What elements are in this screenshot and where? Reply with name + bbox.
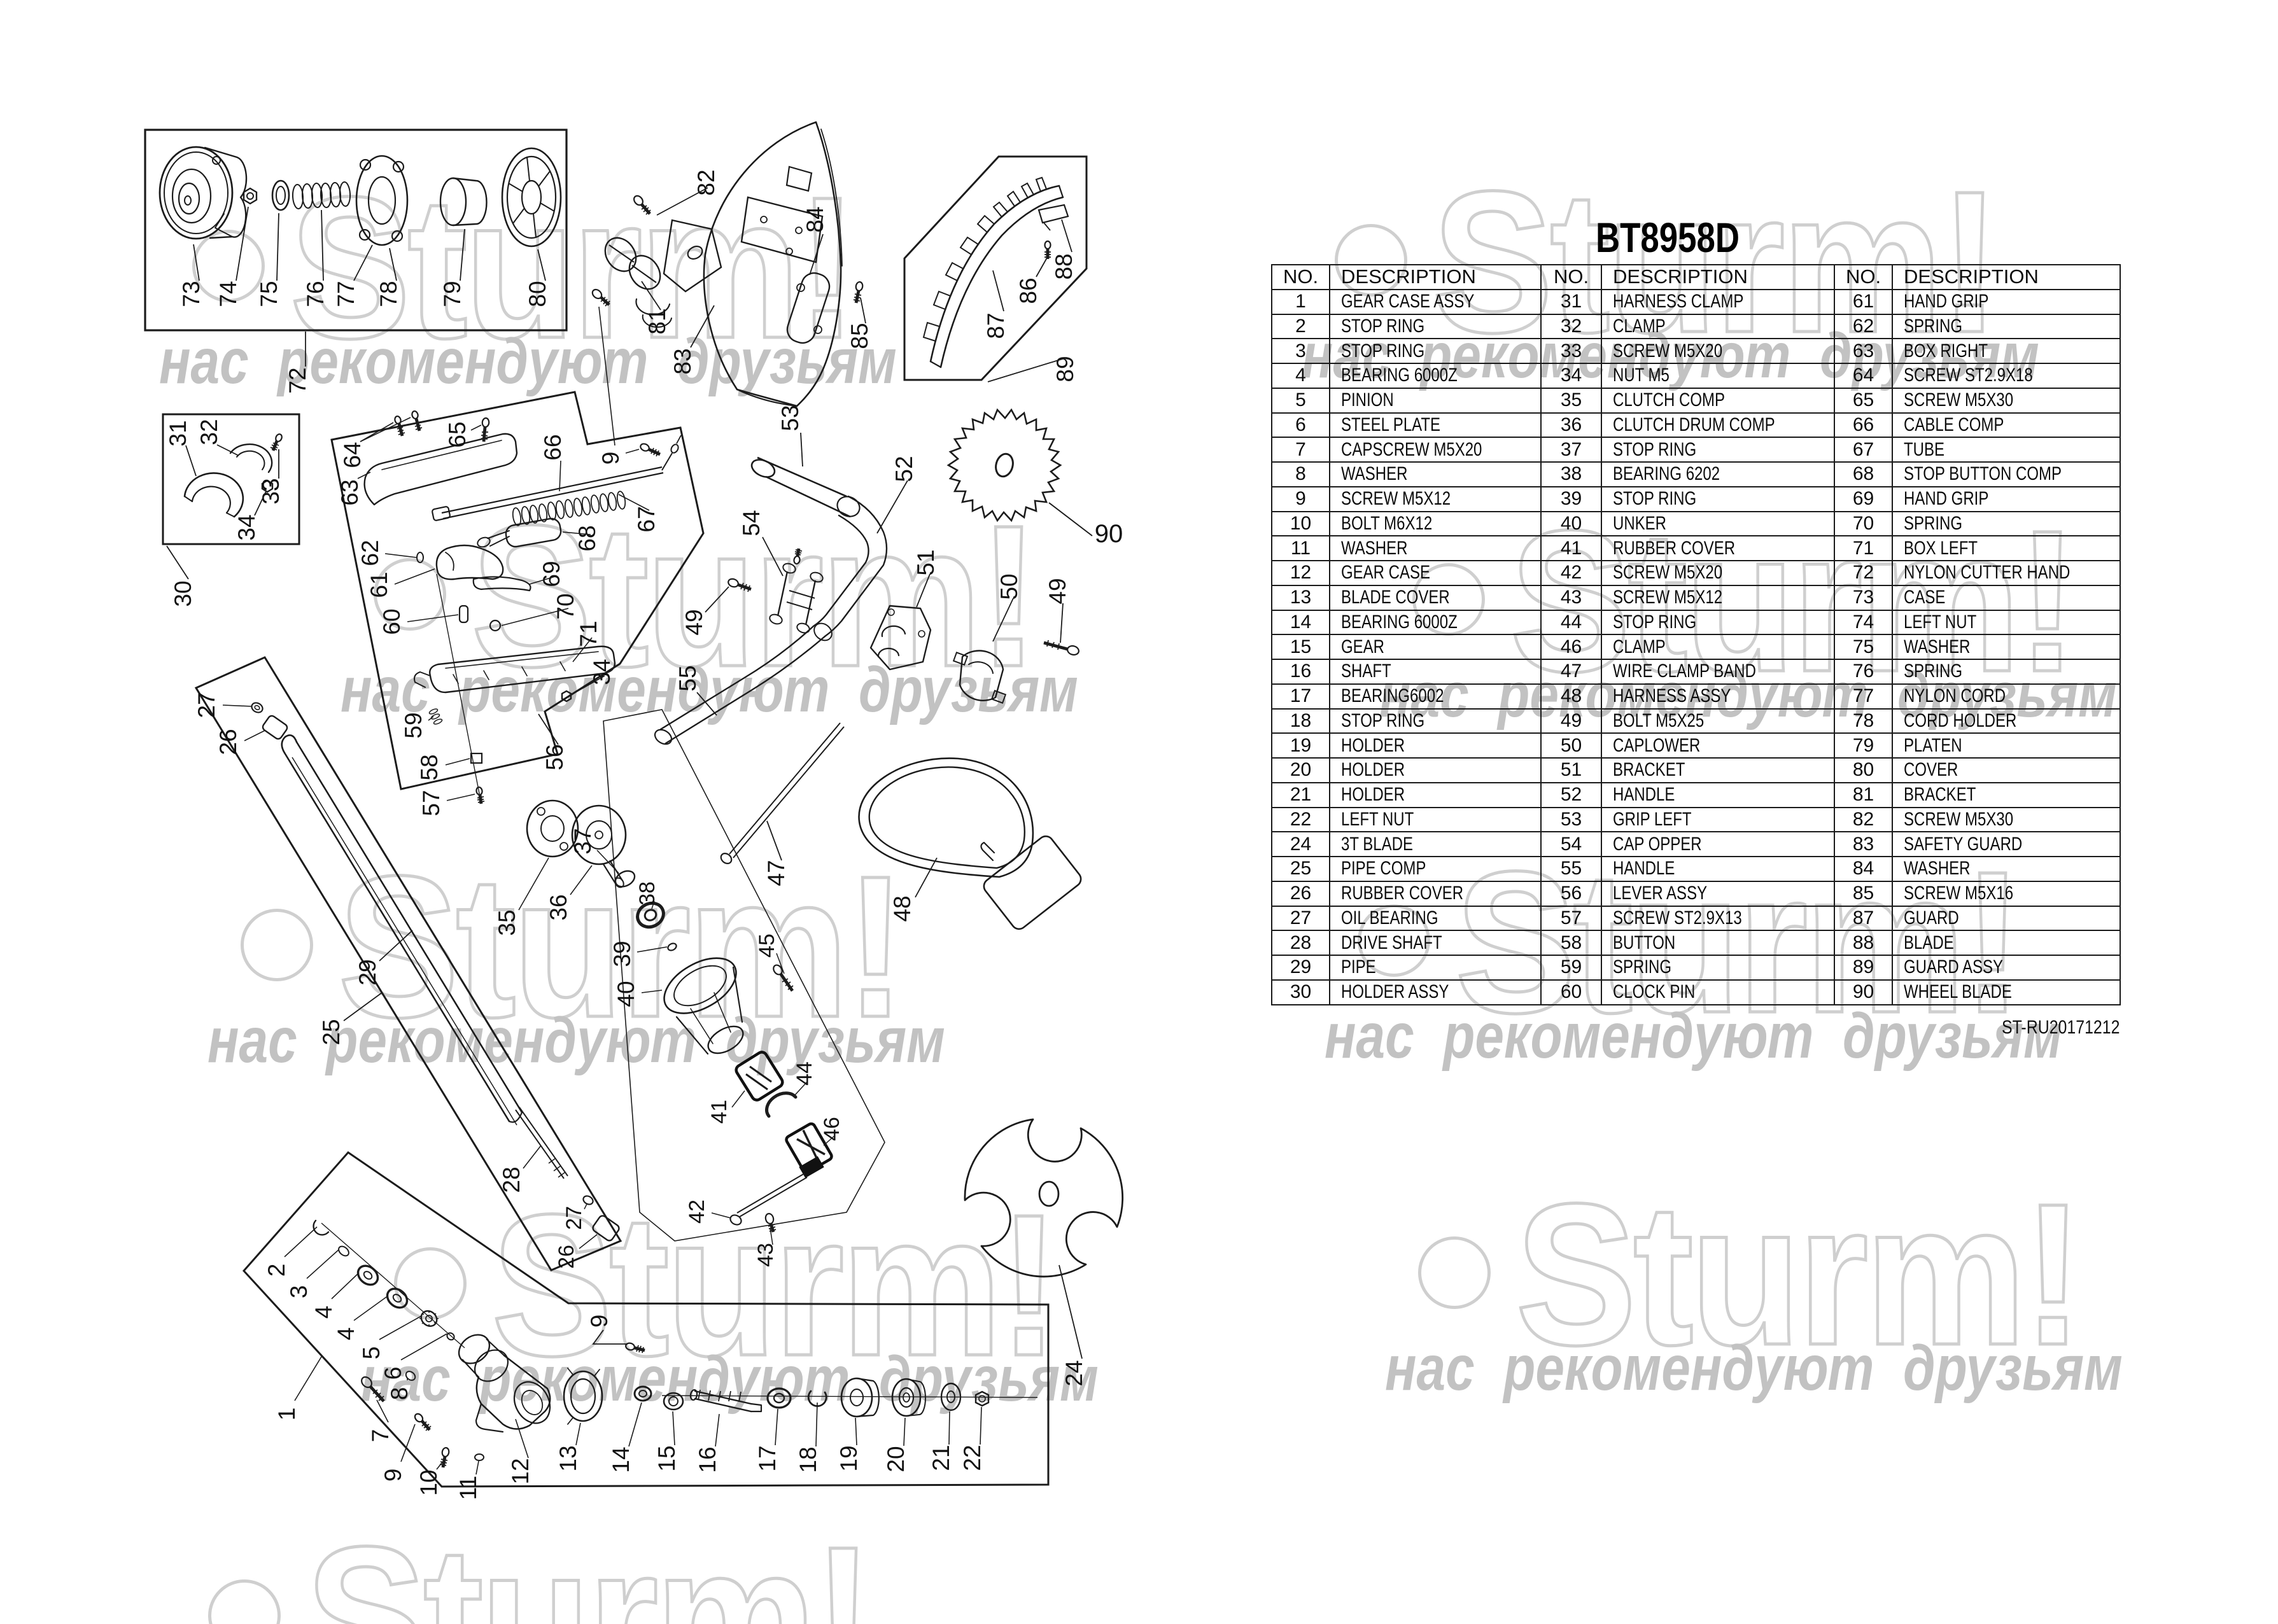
- svg-text:60: 60: [379, 608, 405, 634]
- svg-text:71: 71: [575, 620, 601, 647]
- svg-text:59: 59: [400, 712, 426, 738]
- svg-text:88: 88: [1051, 253, 1077, 279]
- svg-text:36: 36: [545, 894, 572, 920]
- svg-text:52: 52: [891, 456, 917, 482]
- svg-text:62: 62: [357, 540, 383, 566]
- svg-text:63: 63: [337, 479, 363, 505]
- svg-text:66: 66: [540, 434, 566, 460]
- svg-text:26: 26: [215, 729, 241, 755]
- svg-text:14: 14: [608, 1446, 634, 1473]
- svg-text:28: 28: [498, 1166, 524, 1193]
- svg-text:16: 16: [694, 1446, 721, 1473]
- svg-text:9: 9: [380, 1469, 406, 1482]
- svg-text:2: 2: [264, 1264, 290, 1277]
- svg-text:40: 40: [613, 981, 639, 1007]
- svg-text:32: 32: [196, 419, 222, 445]
- svg-text:29: 29: [355, 959, 381, 985]
- svg-text:77: 77: [333, 281, 359, 307]
- svg-text:61: 61: [366, 571, 392, 598]
- svg-text:81: 81: [644, 308, 670, 334]
- svg-text:74: 74: [215, 281, 241, 307]
- svg-text:48: 48: [889, 895, 915, 921]
- svg-text:35: 35: [494, 909, 520, 935]
- svg-text:7: 7: [367, 1429, 393, 1443]
- svg-text:90: 90: [1095, 520, 1123, 548]
- svg-text:11: 11: [455, 1476, 481, 1500]
- svg-text:58: 58: [416, 754, 442, 780]
- svg-text:84: 84: [802, 206, 828, 232]
- svg-text:38: 38: [635, 881, 659, 906]
- svg-text:19: 19: [836, 1445, 862, 1471]
- svg-text:79: 79: [439, 281, 465, 307]
- svg-text:69: 69: [538, 561, 565, 587]
- svg-text:50: 50: [996, 573, 1022, 599]
- svg-text:78: 78: [376, 281, 402, 307]
- svg-text:30: 30: [170, 580, 196, 606]
- svg-text:34: 34: [589, 659, 615, 685]
- svg-text:5: 5: [358, 1347, 384, 1360]
- svg-text:49: 49: [1044, 578, 1071, 604]
- svg-text:1: 1: [274, 1408, 300, 1421]
- svg-text:9: 9: [586, 1315, 612, 1328]
- svg-text:73: 73: [178, 281, 204, 307]
- svg-text:3: 3: [286, 1285, 312, 1299]
- svg-text:12: 12: [507, 1458, 533, 1484]
- svg-text:10: 10: [416, 1469, 442, 1495]
- svg-text:22: 22: [959, 1445, 985, 1471]
- svg-text:82: 82: [693, 169, 719, 195]
- svg-text:64: 64: [339, 442, 365, 468]
- svg-text:34: 34: [234, 514, 260, 540]
- svg-text:42: 42: [685, 1200, 709, 1224]
- svg-text:8: 8: [386, 1387, 412, 1401]
- svg-text:43: 43: [754, 1243, 778, 1267]
- svg-text:54: 54: [738, 510, 764, 536]
- svg-text:51: 51: [913, 549, 939, 575]
- svg-text:4: 4: [311, 1306, 337, 1319]
- svg-text:65: 65: [444, 421, 470, 447]
- svg-text:49: 49: [681, 609, 707, 635]
- svg-text:39: 39: [609, 941, 635, 967]
- svg-text:17: 17: [754, 1445, 780, 1471]
- svg-text:47: 47: [763, 860, 789, 886]
- svg-text:67: 67: [633, 506, 659, 532]
- svg-text:46: 46: [820, 1117, 844, 1141]
- svg-text:87: 87: [983, 312, 1009, 339]
- svg-text:80: 80: [524, 281, 551, 307]
- svg-text:83: 83: [670, 348, 696, 374]
- svg-text:53: 53: [777, 405, 803, 431]
- svg-text:9: 9: [598, 452, 624, 465]
- svg-text:75: 75: [256, 281, 282, 307]
- svg-text:85: 85: [847, 323, 873, 349]
- svg-text:86: 86: [1015, 277, 1041, 304]
- svg-text:15: 15: [654, 1445, 680, 1471]
- svg-text:24: 24: [1061, 1360, 1087, 1386]
- svg-text:57: 57: [418, 790, 444, 816]
- svg-text:26: 26: [554, 1245, 579, 1269]
- svg-text:6: 6: [380, 1367, 406, 1380]
- svg-text:44: 44: [792, 1061, 817, 1086]
- svg-text:31: 31: [165, 420, 191, 446]
- svg-text:41: 41: [707, 1100, 731, 1124]
- svg-text:27: 27: [562, 1206, 586, 1230]
- svg-text:37: 37: [570, 828, 596, 854]
- svg-text:68: 68: [574, 525, 600, 551]
- svg-text:76: 76: [302, 281, 328, 307]
- svg-text:89: 89: [1052, 356, 1078, 382]
- svg-text:70: 70: [552, 593, 579, 619]
- svg-text:72: 72: [285, 367, 311, 393]
- svg-text:20: 20: [883, 1446, 909, 1472]
- svg-text:18: 18: [795, 1446, 821, 1473]
- svg-text:45: 45: [755, 934, 779, 958]
- svg-text:13: 13: [555, 1445, 581, 1471]
- svg-text:27: 27: [193, 692, 220, 718]
- svg-text:55: 55: [675, 665, 701, 691]
- svg-text:25: 25: [318, 1019, 344, 1045]
- svg-text:4: 4: [333, 1327, 359, 1341]
- svg-text:21: 21: [928, 1445, 954, 1471]
- svg-text:56: 56: [542, 744, 568, 770]
